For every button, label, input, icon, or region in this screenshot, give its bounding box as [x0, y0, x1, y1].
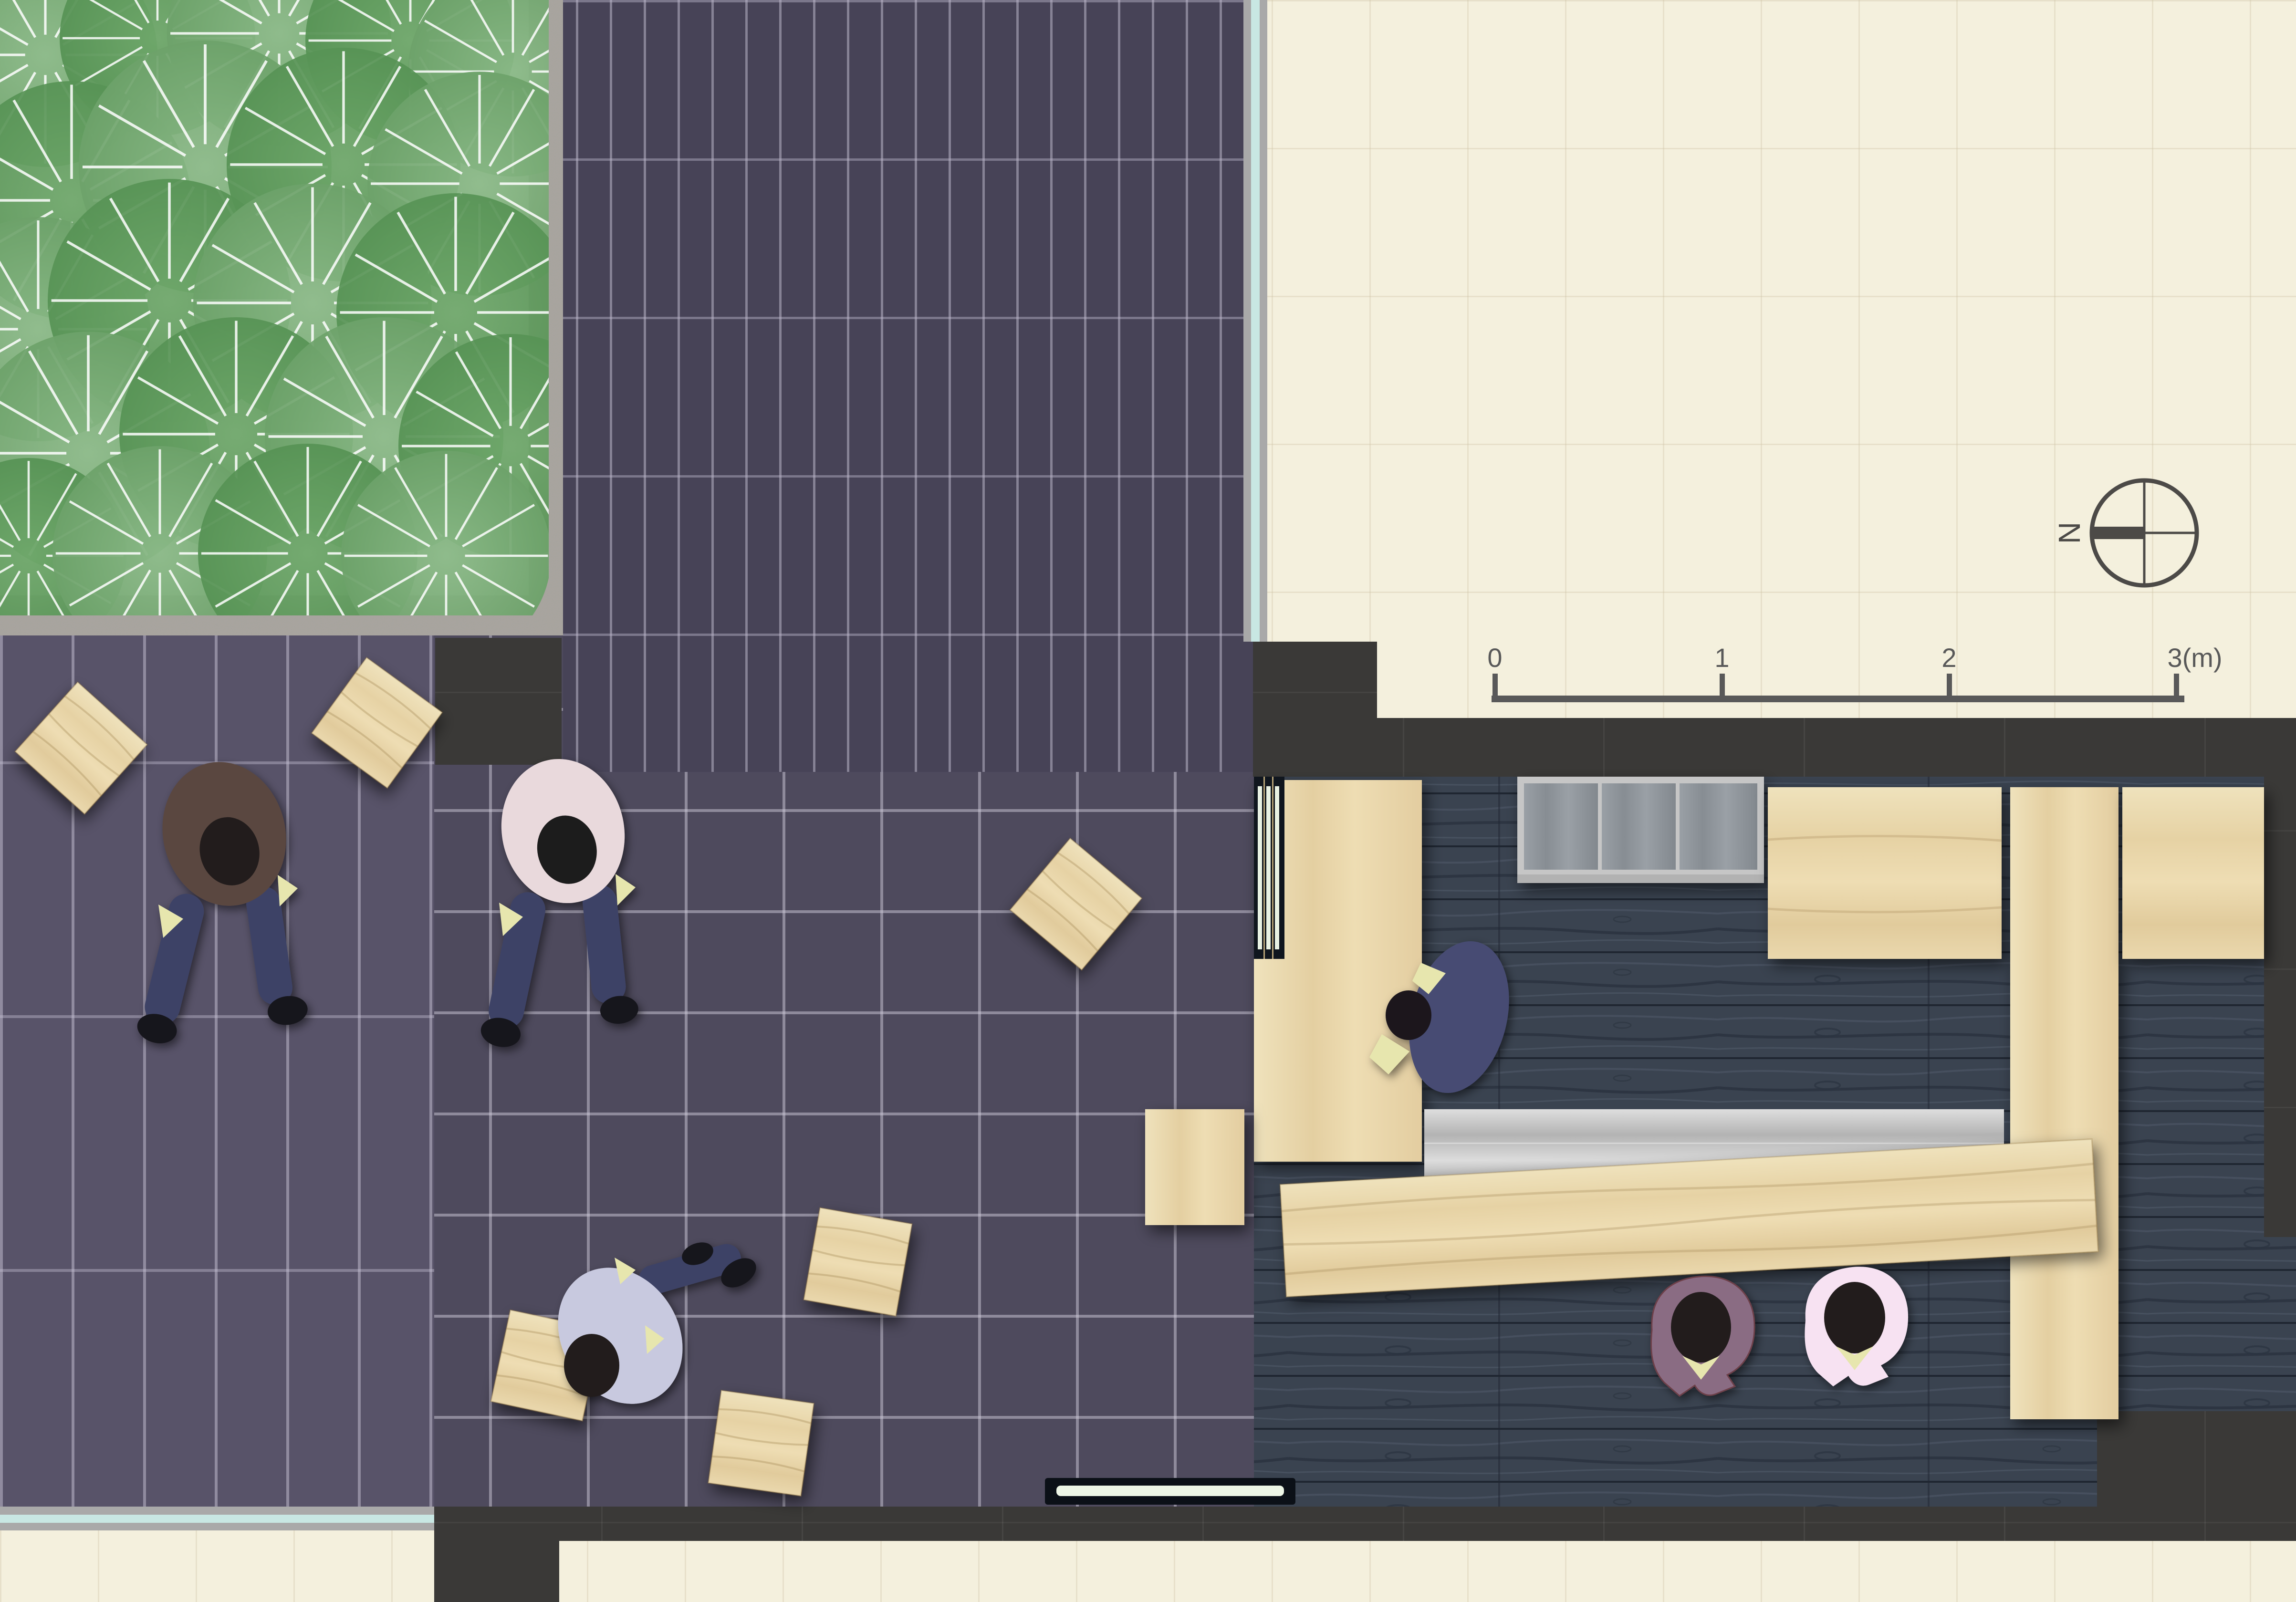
wall-counter	[2122, 787, 2264, 959]
slatted-bench	[1254, 777, 1284, 959]
scale-tick	[1492, 674, 1498, 697]
scale-label-3m: 3(m)	[2167, 643, 2222, 673]
scale-tick	[1947, 674, 1952, 697]
wall-segment	[434, 1507, 2296, 1541]
glass-facade-line-bottom	[0, 1507, 434, 1530]
grill-cabinet	[1517, 777, 1764, 883]
wall-segment	[1253, 642, 1377, 777]
wall-segment	[434, 1507, 559, 1602]
north-label: N	[2052, 522, 2087, 544]
floor-light-strip	[1045, 1478, 1295, 1505]
upper-counter	[1768, 787, 2002, 959]
island-plank-counter	[2010, 787, 2119, 1419]
north-arrow-icon	[2092, 527, 2144, 539]
site-plan: 0 1 2 3(m) N	[0, 0, 2296, 1602]
wood-stool	[708, 1390, 814, 1496]
wall-segment	[1377, 718, 2296, 777]
planting-bed	[0, 0, 623, 663]
scale-label-0: 0	[1487, 643, 1502, 673]
scale-label-2: 2	[1941, 643, 1956, 673]
scale-label-1: 1	[1714, 643, 1729, 673]
shrub-canopies	[0, 0, 623, 663]
scale-bar-line	[1492, 696, 2184, 702]
upper-tile-paving	[563, 0, 1253, 772]
glass-facade-line-vertical	[1243, 0, 1267, 642]
wall-segment	[435, 638, 562, 765]
wood-stool	[804, 1207, 912, 1316]
scale-tick	[1720, 674, 1725, 697]
wall-segment	[2264, 777, 2296, 1237]
bench-cube	[1145, 1109, 1244, 1225]
scale-tick	[2174, 674, 2179, 697]
